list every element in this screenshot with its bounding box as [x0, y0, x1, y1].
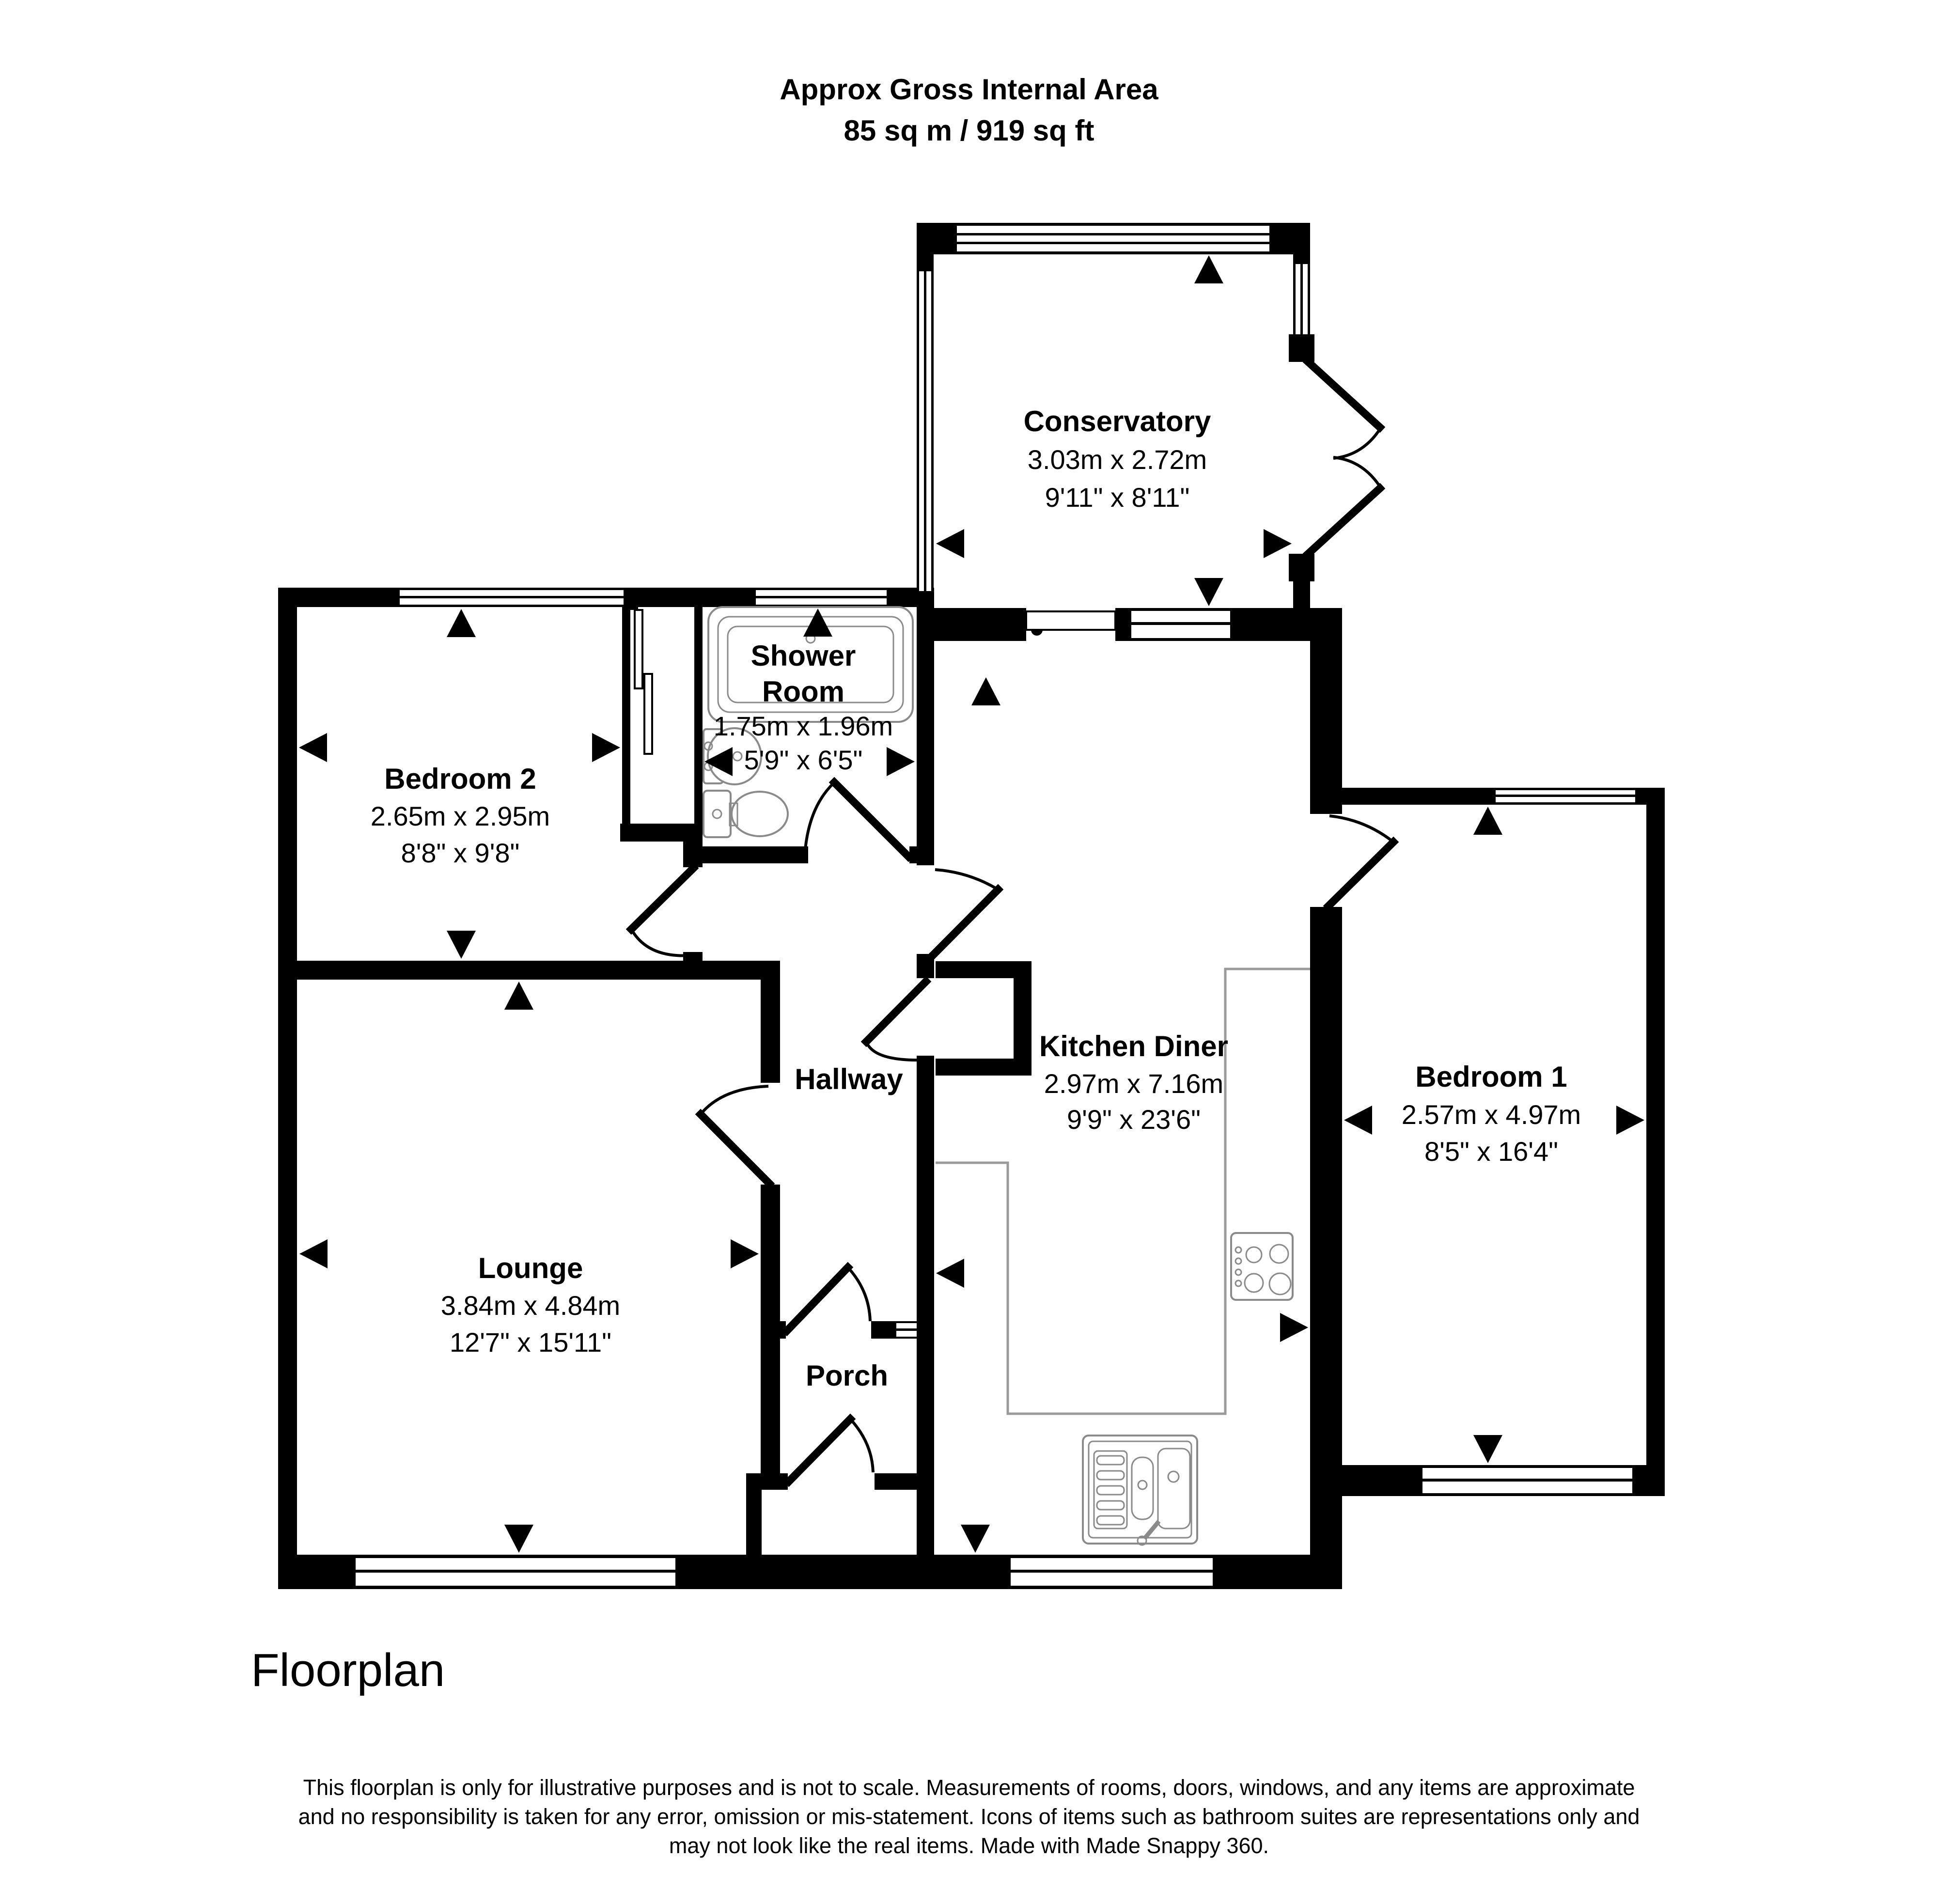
disclaimer-line-1: This floorplan is only for illustrative … — [303, 1775, 1635, 1800]
window-symbol — [1131, 611, 1230, 638]
floorplan-svg: Approx Gross Internal Area 85 sq m / 919… — [0, 0, 1938, 1904]
measure-arrow-up — [447, 609, 476, 637]
bedroom2-label: Bedroom 2 — [384, 763, 536, 795]
conservatory-label: Conservatory — [1024, 405, 1211, 437]
measure-arrow-right — [1280, 1313, 1308, 1342]
window-symbol — [957, 226, 1269, 251]
measure-arrow-down — [447, 931, 476, 959]
window-symbol — [1496, 790, 1635, 802]
bedroom1-metric: 2.57m x 4.97m — [1402, 1099, 1581, 1130]
disclaimer-line-2: and no responsibility is taken for any e… — [298, 1804, 1640, 1829]
wall-segment-cupboard — [1014, 961, 1032, 1076]
measure-arrow-up — [971, 677, 1000, 705]
hinge-block — [871, 1321, 896, 1339]
conservatory-metric: 3.03m x 2.72m — [1028, 444, 1207, 475]
hinge-block — [875, 1473, 896, 1490]
wall-segment-pocket — [622, 588, 638, 610]
wall-segment — [278, 588, 297, 1589]
lounge-label: Lounge — [478, 1252, 583, 1284]
window-symbol — [919, 271, 931, 591]
kitchen-metric: 2.97m x 7.16m — [1044, 1068, 1223, 1099]
kitchen-label: Kitchen Diner — [1039, 1030, 1228, 1062]
measure-arrow-up — [1473, 807, 1502, 835]
lounge-metric: 3.84m x 4.84m — [441, 1290, 620, 1321]
door-layer — [631, 362, 1393, 1482]
measure-arrow-right — [1616, 1106, 1644, 1135]
doorway-conservatory-french — [1291, 361, 1312, 555]
opening-layer — [759, 361, 1344, 1492]
porch-label: Porch — [806, 1359, 888, 1392]
measure-arrow-right — [1264, 529, 1292, 558]
hinge-block — [1289, 554, 1314, 581]
bedroom1-imperial: 8'5" x 16'4" — [1424, 1136, 1558, 1167]
disclaimer-line-3: may not look like the real items. Made w… — [669, 1833, 1269, 1858]
measure-arrow-left — [936, 529, 964, 558]
hallway-label: Hallway — [795, 1063, 903, 1095]
hob-icon — [1231, 1233, 1293, 1300]
measure-arrow-layer — [299, 255, 1644, 1553]
gross-area-title: Approx Gross Internal Area — [780, 73, 1158, 106]
wall-segment-pocket — [694, 588, 703, 824]
wall-segment-pocket — [622, 588, 630, 824]
window-symbol — [1011, 1558, 1213, 1586]
kitchen-imperial: 9'9" x 23'6" — [1067, 1104, 1201, 1135]
door-swing-symbol-kitchen — [934, 870, 998, 954]
wall-segment-cupboard — [936, 1059, 1032, 1076]
measure-arrow-left — [936, 1259, 964, 1288]
bedroom2-imperial: 8'8" x 9'8" — [401, 838, 520, 868]
window-symbol — [1422, 1468, 1632, 1493]
wall-segment — [1310, 608, 1342, 1589]
conservatory-imperial: 9'11" x 8'11" — [1045, 482, 1190, 513]
sink-icon — [1083, 1436, 1197, 1545]
wall-layer — [278, 223, 1665, 1589]
door-swing-symbol-french-bottom — [1308, 457, 1380, 554]
doorway-kitchen — [915, 865, 936, 954]
measure-arrow-up — [1194, 255, 1223, 283]
wall-segment — [746, 1473, 762, 1589]
measure-arrow-right — [592, 733, 620, 762]
measure-arrow-down — [504, 1525, 533, 1553]
hinge-block — [1289, 334, 1314, 362]
measure-arrow-left — [299, 733, 327, 762]
measure-arrow-up — [504, 982, 533, 1010]
pocket-door-symbol — [635, 610, 652, 754]
shower-room-label-2: Room — [762, 675, 844, 708]
shower-room-metric: 1.75m x 1.96m — [714, 711, 893, 741]
gross-area-value: 85 sq m / 919 sq ft — [844, 114, 1094, 147]
measure-arrow-right — [887, 747, 915, 776]
window-layer — [356, 226, 1635, 1586]
door-swing-symbol-french-top — [1308, 362, 1380, 458]
wall-segment — [761, 980, 780, 1473]
floorplan-page: Approx Gross Internal Area 85 sq m / 919… — [0, 0, 1938, 1904]
measure-arrow-left — [299, 1239, 328, 1268]
measure-arrow-down — [961, 1525, 990, 1553]
shower-room-label-1: Shower — [751, 640, 856, 672]
bedroom1-label: Bedroom 1 — [1415, 1061, 1567, 1093]
measure-arrow-left — [1344, 1106, 1372, 1135]
wall-segment — [1646, 788, 1665, 1496]
wall-segment — [917, 588, 934, 1555]
toilet-icon — [703, 791, 788, 837]
window-symbol — [356, 1558, 675, 1586]
floorplan-caption: Floorplan — [251, 1644, 445, 1696]
doorway-lounge — [759, 1083, 782, 1185]
bedroom2-metric: 2.65m x 2.95m — [371, 801, 550, 831]
measure-arrow-right — [731, 1239, 759, 1268]
lounge-imperial: 12'7" x 15'11" — [450, 1327, 611, 1358]
wall-segment — [278, 961, 780, 980]
wall-segment — [620, 824, 703, 842]
door-swing-symbol-bedroom2 — [631, 868, 693, 956]
measure-arrow-down — [1194, 578, 1223, 606]
window-symbol — [756, 590, 887, 605]
window-symbol — [1296, 264, 1308, 334]
room-label-layer: Conservatory 3.03m x 2.72m 9'11" x 8'11"… — [371, 405, 1581, 1392]
window-symbol — [400, 590, 624, 605]
shower-room-imperial: 5'9" x 6'5" — [744, 745, 863, 775]
measure-arrow-down — [1473, 1435, 1502, 1463]
